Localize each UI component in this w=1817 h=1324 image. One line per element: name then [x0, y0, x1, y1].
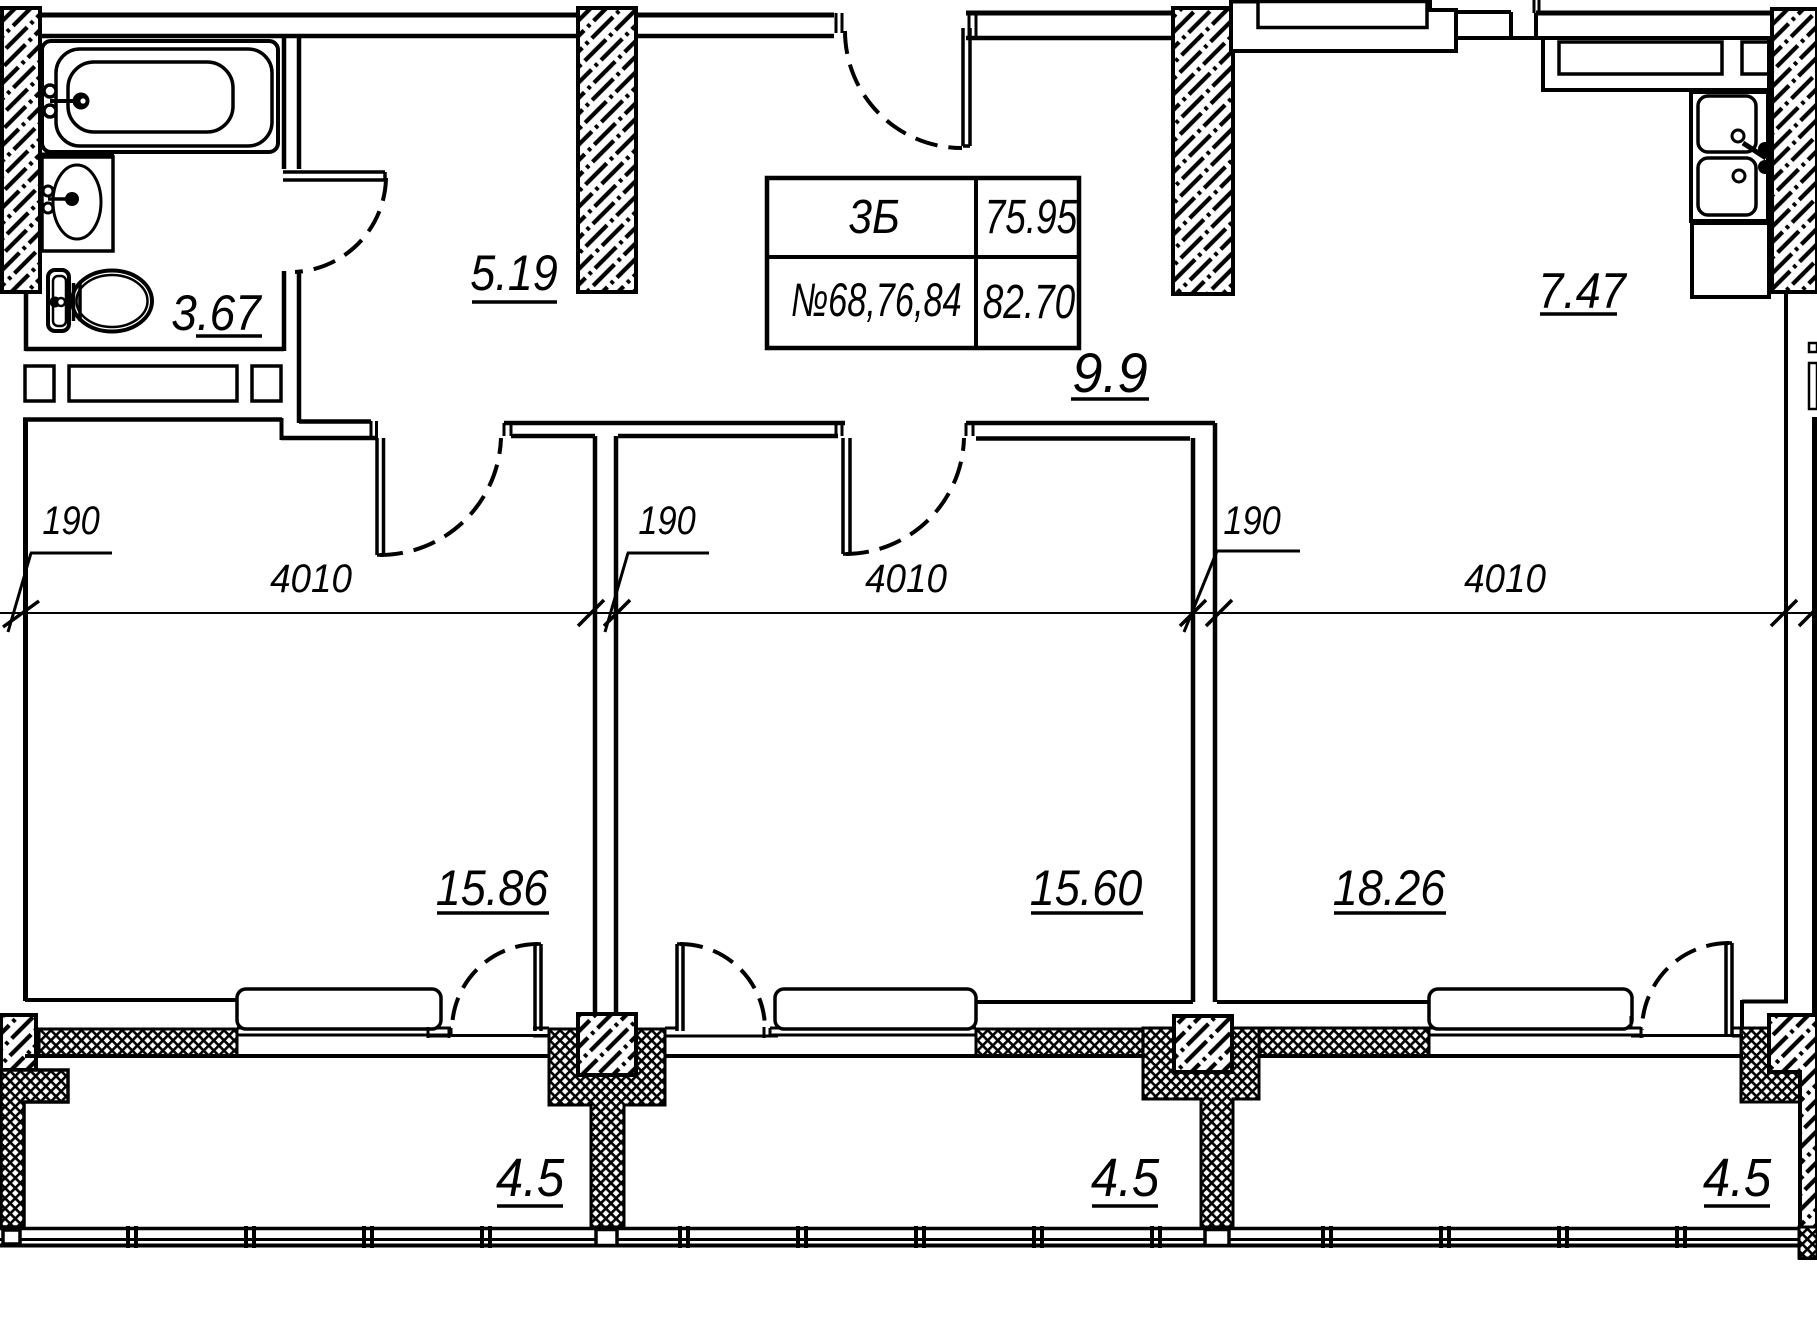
svg-text:9.9: 9.9	[1072, 341, 1148, 404]
svg-text:82.70: 82.70	[983, 275, 1076, 329]
svg-text:5.19: 5.19	[470, 246, 558, 302]
svg-text:4.5: 4.5	[1091, 1147, 1160, 1208]
svg-text:15.86: 15.86	[436, 861, 549, 917]
svg-text:4010: 4010	[865, 557, 947, 602]
svg-text:3.67: 3.67	[171, 286, 263, 341]
svg-text:№68,76,84: №68,76,84	[791, 274, 962, 327]
svg-text:3Б: 3Б	[848, 190, 900, 244]
svg-text:7.47: 7.47	[1538, 264, 1627, 320]
svg-text:4.5: 4.5	[496, 1147, 565, 1208]
svg-text:4010: 4010	[1464, 557, 1546, 602]
svg-text:15.60: 15.60	[1030, 861, 1143, 917]
svg-text:75.95: 75.95	[985, 190, 1078, 244]
svg-text:190: 190	[1223, 498, 1281, 543]
svg-text:4010: 4010	[270, 557, 352, 602]
svg-text:4.5: 4.5	[1703, 1147, 1772, 1208]
svg-text:18.26: 18.26	[1333, 861, 1446, 917]
svg-text:190: 190	[42, 498, 100, 543]
svg-text:190: 190	[638, 498, 696, 543]
